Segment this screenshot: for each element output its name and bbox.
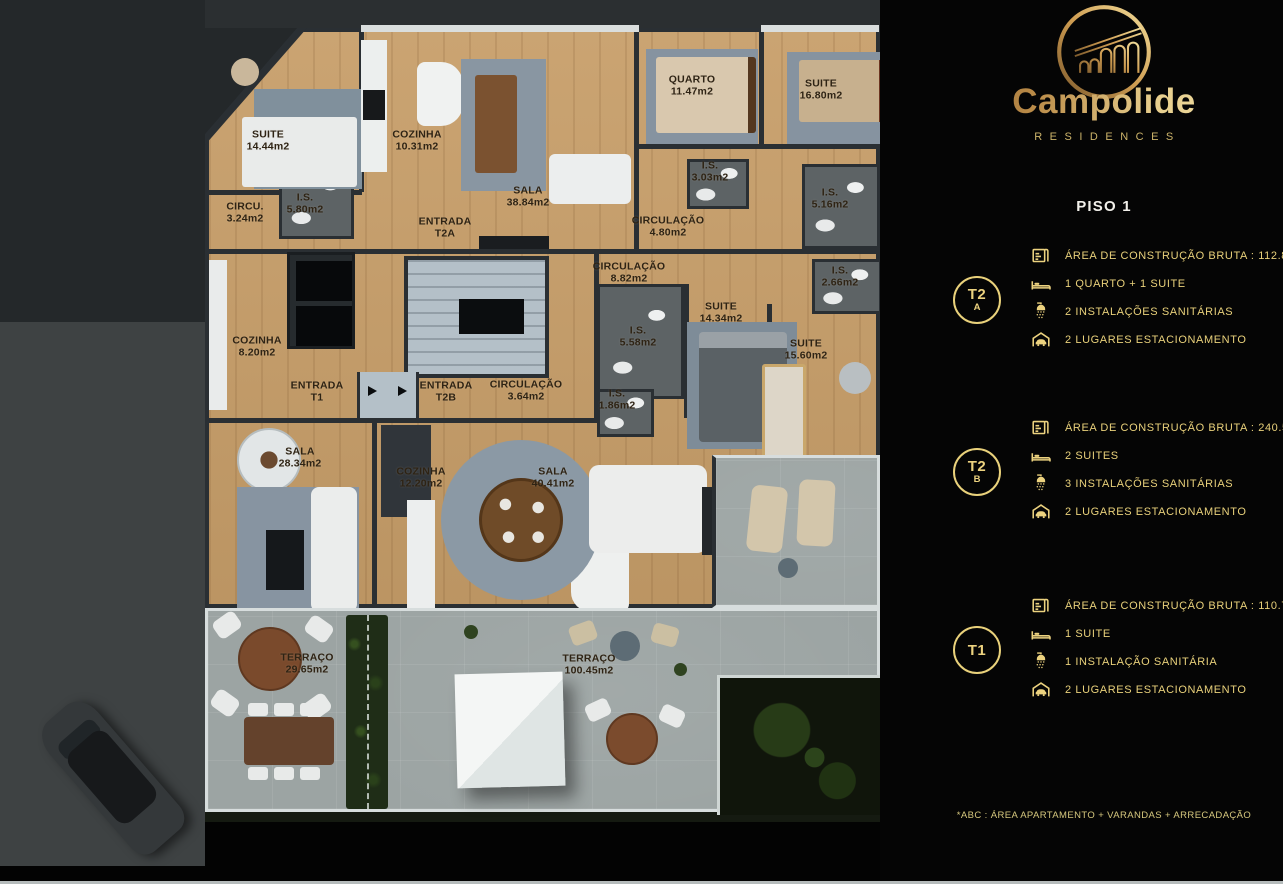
badge-text: T1 [968, 643, 987, 658]
garage-icon [1030, 329, 1052, 351]
terrace-table [606, 713, 658, 765]
room-area: 3.03m2 [692, 172, 729, 184]
wall [372, 423, 377, 612]
room-name: SUITE [800, 78, 843, 90]
terrace-dining-table [244, 717, 334, 765]
room-area: 3.64m2 [490, 391, 563, 403]
plant-pot [464, 625, 478, 639]
room-area: T1 [291, 392, 344, 404]
room-label: COZINHA10.31m2 [392, 129, 441, 154]
spec-row: 2 LUGARES ESTACIONAMENTO [1030, 330, 1283, 350]
brand-wordmark: Campolide [924, 82, 1283, 122]
floor-title: PISO 1 [924, 198, 1283, 215]
terrace-upper-right [712, 455, 880, 608]
room-area: 12.20m2 [396, 478, 445, 490]
bed-icon [1030, 445, 1052, 467]
room-area: 8.82m2 [593, 273, 666, 285]
stair-void [459, 299, 524, 334]
room-label: SUITE14.44m2 [247, 129, 290, 154]
spec-text: 2 LUGARES ESTACIONAMENTO [1065, 506, 1246, 518]
room-name: SALA [507, 185, 550, 197]
spec-row: 2 INSTALAÇÕES SANITÁRIAS [1030, 302, 1283, 322]
room-name: I.S. [822, 265, 859, 277]
spec-text: 3 INSTALAÇÕES SANITÁRIAS [1065, 478, 1233, 490]
room-label: ENTRADAT1 [291, 380, 344, 405]
room-name: TERRAÇO [280, 652, 333, 664]
room-name: I.S. [620, 325, 657, 337]
floorplan-brochure: SUITE14.44m2 COZINHA10.31m2 SALA38.84m2 … [0, 0, 1283, 884]
blueprint-icon [1030, 595, 1052, 617]
room-name: SUITE [785, 338, 828, 350]
room-area: T2B [420, 392, 473, 404]
garage-icon [1030, 679, 1052, 701]
room-label: TERRAÇO29.65m2 [280, 652, 333, 677]
elevator-arrow-icon [398, 386, 407, 396]
room-area: 2.66m2 [822, 277, 859, 289]
room-name: SALA [532, 466, 575, 478]
room-area: 100.45m2 [562, 665, 615, 677]
shower-icon [1030, 473, 1052, 495]
spec-text: 2 LUGARES ESTACIONAMENTO [1065, 684, 1246, 696]
room-area: 5.16m2 [812, 199, 849, 211]
room-name: I.S. [287, 192, 324, 204]
unit-spec-t2a: T2 A ÁREA DE CONSTRUÇÃO BRUTA : 112.85 м… [924, 244, 1283, 374]
room-area: 38.84m2 [507, 197, 550, 209]
room-area: 14.34m2 [700, 313, 743, 325]
blueprint-icon [1030, 417, 1052, 439]
stove [363, 90, 385, 120]
room-name: COZINHA [396, 466, 445, 478]
garden [717, 675, 880, 815]
room-label: I.S.1.86m2 [599, 388, 636, 413]
room-name: I.S. [812, 187, 849, 199]
room-area: T2A [419, 228, 472, 240]
spec-text: 2 LUGARES ESTACIONAMENTO [1065, 334, 1246, 346]
spec-row: 1 QUARTO + 1 SUITE [1030, 274, 1283, 294]
sofa [549, 154, 631, 204]
balcony-ledge [361, 25, 639, 32]
room-name: COZINHA [392, 129, 441, 141]
badge-text: T2 [968, 459, 987, 474]
unit-spec-t1: T1 ÁREA DE CONSTRUÇÃO BRUTA : 110.70м2* … [924, 594, 1283, 724]
unit-spec-t2b: T2 B ÁREA DE CONSTRUÇÃO BRUTA : 240.55 м… [924, 416, 1283, 546]
room-area: 3.24m2 [226, 213, 263, 225]
room-label: SUITE14.34m2 [700, 301, 743, 326]
room-area: 16.80m2 [800, 90, 843, 102]
wall [209, 418, 637, 423]
elevator-shafts [287, 252, 355, 349]
room-area: 8.20m2 [232, 347, 281, 359]
adjacent-roof-area [0, 0, 205, 322]
unit-badge-t2a: T2 A [953, 276, 1001, 324]
terrace-chair [209, 687, 242, 718]
room-name: SUITE [700, 301, 743, 313]
fireplace [266, 530, 304, 590]
abc-footnote: *ABC : ÁREA APARTAMENTO + VARANDAS + ARR… [924, 810, 1283, 821]
wall [639, 144, 880, 149]
room-name: I.S. [692, 160, 729, 172]
room-name: COZINHA [232, 335, 281, 347]
terrace-chair [303, 613, 336, 644]
room-label: CIRCULAÇÃO4.80m2 [632, 215, 705, 240]
room-area: 1.86m2 [599, 400, 636, 412]
spec-row: 1 SUITE [1030, 624, 1283, 644]
plant-pot [674, 663, 687, 676]
bottom-black-bar [205, 822, 880, 884]
sun-lounger [796, 479, 835, 547]
dining-table [475, 75, 517, 173]
spec-row: 1 INSTALAÇÃO SANITÁRIA [1030, 652, 1283, 672]
room-area: 4.80m2 [632, 227, 705, 239]
brand-subtitle: RESIDENCES [924, 131, 1283, 143]
balcony-ledge [761, 25, 879, 32]
room-label: ENTRADAT2A [419, 216, 472, 241]
terrace [205, 608, 880, 812]
sofa [589, 465, 707, 553]
room-area: 5.80m2 [287, 204, 324, 216]
planter-hedge [346, 615, 388, 809]
spec-text: 1 INSTALAÇÃO SANITÁRIA [1065, 656, 1217, 668]
spec-text: 1 SUITE [1065, 628, 1111, 640]
room-label: COZINHA12.20m2 [396, 466, 445, 491]
room-area: 14.44m2 [247, 141, 290, 153]
parked-car [33, 693, 192, 862]
terrace-chair [248, 767, 268, 780]
spec-row: ÁREA DE CONSTRUÇÃO BRUTA : 112.85 м2* [1030, 246, 1283, 266]
elevator-lobby [357, 372, 419, 418]
badge-text: T2 [968, 287, 987, 302]
console-table [479, 236, 549, 249]
room-name: CIRCULAÇÃO [593, 261, 666, 273]
pergola-canopy [455, 672, 566, 789]
terrace-chair [248, 703, 268, 716]
unit-badge-t2b: T2 B [953, 448, 1001, 496]
armchair [839, 362, 871, 394]
terrace-chair [274, 703, 294, 716]
garage-icon [1030, 501, 1052, 523]
kitchen-counter [209, 260, 227, 410]
info-panel: Campolide RESIDENCES PISO 1 T2 A ÁREA DE… [880, 0, 1283, 884]
room-label: I.S.5.16m2 [812, 187, 849, 212]
room-label: I.S.3.03m2 [692, 160, 729, 185]
room-label: I.S.5.58m2 [620, 325, 657, 350]
room-label: COZINHA8.20m2 [232, 335, 281, 360]
terrace-chair [650, 622, 680, 648]
room-label: ENTRADAT2B [420, 380, 473, 405]
room-area: 40.41m2 [532, 478, 575, 490]
bed-icon [1030, 623, 1052, 645]
room-name: ENTRADA [419, 216, 472, 228]
blueprint-icon [1030, 245, 1052, 267]
room-name: SUITE [247, 129, 290, 141]
shower-icon [1030, 301, 1052, 323]
room-name: SALA [279, 446, 322, 458]
room-label: SALA40.41m2 [532, 466, 575, 491]
spec-text: 2 INSTALAÇÕES SANITÁRIAS [1065, 306, 1233, 318]
room-label: TERRAÇO100.45m2 [562, 653, 615, 678]
kitchen-island [417, 62, 463, 126]
spec-row: 2 SUITES [1030, 446, 1283, 466]
room-name: ENTRADA [291, 380, 344, 392]
floor-plan-scene: SUITE14.44m2 COZINHA10.31m2 SALA38.84m2 … [0, 0, 880, 884]
terrace-chair [657, 703, 686, 729]
terrace-chair [583, 697, 612, 723]
terrace-chair [274, 767, 294, 780]
spec-text: 2 SUITES [1065, 450, 1119, 462]
divider-dashed-line [367, 615, 369, 809]
spec-text: 1 QUARTO + 1 SUITE [1065, 278, 1186, 290]
room-area: 15.60m2 [785, 350, 828, 362]
kitchen-counter [407, 500, 435, 612]
panel-content: Campolide RESIDENCES PISO 1 T2 A ÁREA DE… [924, 0, 1283, 884]
room-label: I.S.2.66m2 [822, 265, 859, 290]
spec-text: ÁREA DE CONSTRUÇÃO BRUTA : 112.85 м2* [1065, 250, 1283, 262]
wall [759, 32, 764, 146]
spec-text: ÁREA DE CONSTRUÇÃO BRUTA : 110.70м2* [1065, 600, 1283, 612]
room-area: 28.34m2 [279, 458, 322, 470]
spec-row: ÁREA DE CONSTRUÇÃO BRUTA : 240.55 м2* [1030, 418, 1283, 438]
badge-subtext: B [974, 475, 981, 485]
room-area: 11.47m2 [669, 86, 716, 98]
terrace-chair [211, 609, 244, 640]
room-name: CIRCULAÇÃO [490, 379, 563, 391]
room-name: TERRAÇO [562, 653, 615, 665]
side-table [778, 558, 798, 578]
room-label: CIRCULAÇÃO3.64m2 [490, 379, 563, 404]
terrace-chair [300, 703, 320, 716]
room-name: CIRCU. [226, 201, 263, 213]
round-dining-table [479, 478, 563, 562]
spec-row: 2 LUGARES ESTACIONAMENTO [1030, 502, 1283, 522]
room-label: CIRCULAÇÃO8.82m2 [593, 261, 666, 286]
armchair [231, 58, 259, 86]
terrace-chair [567, 619, 598, 647]
room-area: 5.58m2 [620, 337, 657, 349]
spec-text: ÁREA DE CONSTRUÇÃO BRUTA : 240.55 м2* [1065, 422, 1283, 434]
room-name: QUARTO [669, 74, 716, 86]
room-label: CIRCU.3.24m2 [226, 201, 263, 226]
room-name: ENTRADA [420, 380, 473, 392]
sofa [311, 487, 357, 612]
room-area: 29.65m2 [280, 664, 333, 676]
bed-icon [1030, 273, 1052, 295]
street [0, 322, 205, 868]
room-name: CIRCULAÇÃO [632, 215, 705, 227]
shower-icon [1030, 651, 1052, 673]
sun-lounger [746, 484, 789, 553]
room-area: 10.31m2 [392, 141, 441, 153]
room-label: SUITE15.60m2 [785, 338, 828, 363]
spec-row: ÁREA DE CONSTRUÇÃO BRUTA : 110.70м2* [1030, 596, 1283, 616]
elevator-arrow-icon [368, 386, 377, 396]
terrace-chair [300, 767, 320, 780]
spec-row: 3 INSTALAÇÕES SANITÁRIAS [1030, 474, 1283, 494]
room-label: SUITE16.80m2 [800, 78, 843, 103]
room-label: QUARTO11.47m2 [669, 74, 716, 99]
unit-badge-t1: T1 [953, 626, 1001, 674]
room-label: SALA28.34m2 [279, 446, 322, 471]
spec-row: 2 LUGARES ESTACIONAMENTO [1030, 680, 1283, 700]
badge-subtext: A [974, 303, 981, 313]
room-name: I.S. [599, 388, 636, 400]
room-label: I.S.5.80m2 [287, 192, 324, 217]
room-label: SALA38.84m2 [507, 185, 550, 210]
